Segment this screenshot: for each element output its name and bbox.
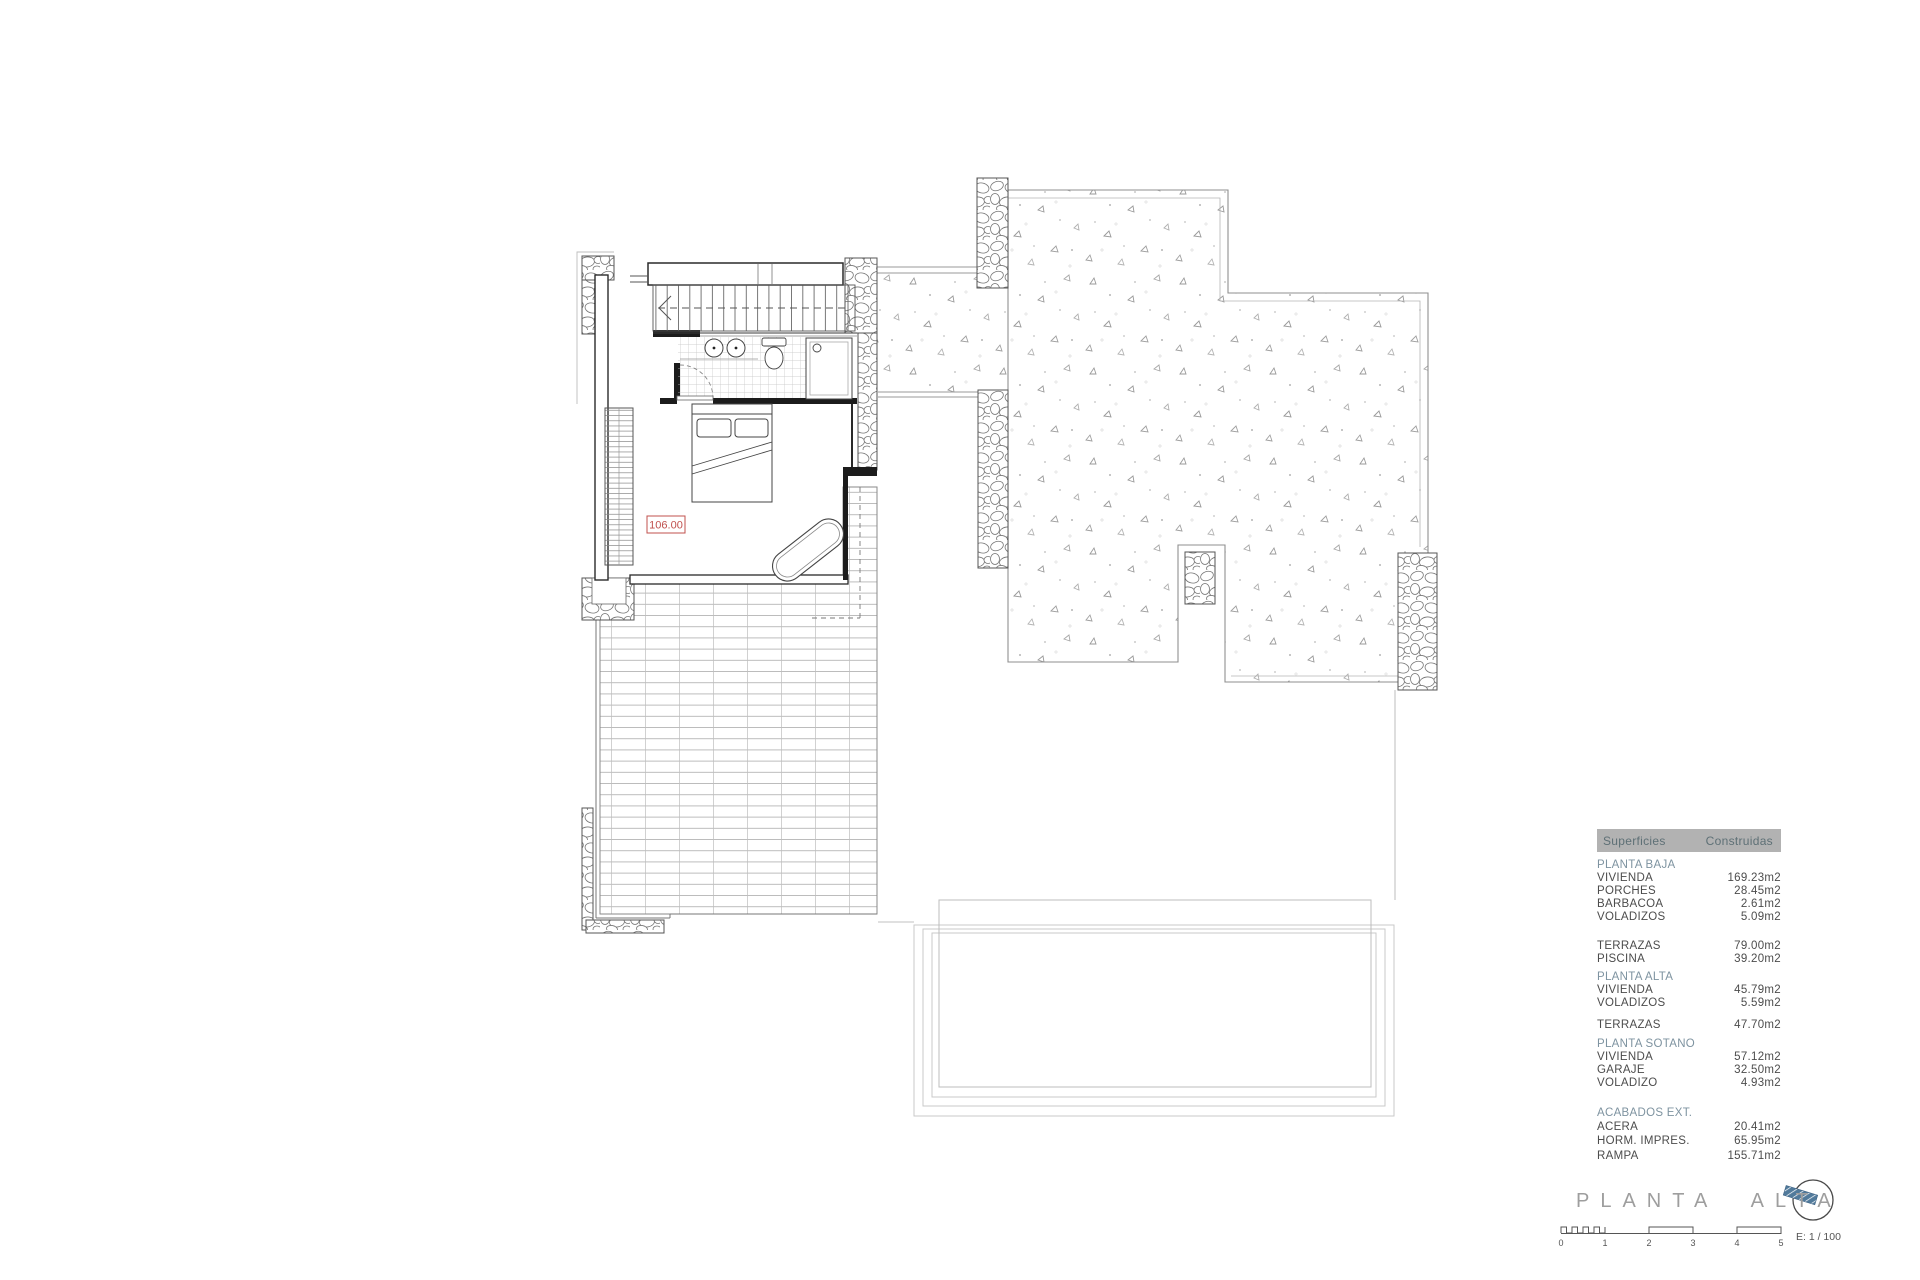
drawing-sheet: 106.00 0 1 2 3 4 5 E: 1 / 100 Superficie… — [0, 0, 1920, 1280]
stone-column — [977, 178, 1008, 288]
table-row: TERRAZAS47.70m2 — [1597, 1019, 1781, 1032]
scale-tick: 3 — [1690, 1238, 1695, 1248]
scale-bar: 0 1 2 3 4 5 E: 1 / 100 — [1558, 1227, 1841, 1248]
table-section-acabados: ACABADOS EXT. ACERA20.41m2 HORM. IMPRES.… — [1597, 1107, 1781, 1164]
scale-tick: 1 — [1602, 1238, 1607, 1248]
table-section-planta-baja: PLANTA BAJA VIVIENDA169.23m2 PORCHES28.4… — [1597, 859, 1781, 924]
window-lines — [630, 276, 648, 282]
bedroom: 106.00 — [605, 404, 850, 587]
stone-wall-strip — [858, 333, 877, 470]
area-label-text: 106.00 — [649, 520, 683, 532]
top-wall — [648, 263, 843, 285]
pillow — [697, 419, 731, 437]
bathroom — [677, 337, 852, 400]
scale-tick: 5 — [1778, 1238, 1783, 1248]
sheet-title: PLANTA ALTA — [1576, 1190, 1842, 1213]
table-section-terrazas-pa: TERRAZAS47.70m2 — [1597, 1019, 1781, 1032]
toilet-tank — [762, 338, 786, 346]
scale-ratio-label: E: 1 / 100 — [1796, 1231, 1841, 1243]
table-row: GARAJE32.50m2 — [1597, 1064, 1781, 1077]
header-col-superficies: Superficies — [1603, 834, 1666, 848]
stone-edge-strip — [586, 920, 664, 933]
table-row: HORM. IMPRES.65.95m2 — [1597, 1134, 1781, 1149]
section-title: PLANTA SOTANO — [1597, 1038, 1781, 1051]
table-row: BARBACOA2.61m2 — [1597, 898, 1781, 911]
table-row: VOLADIZOS5.09m2 — [1597, 911, 1781, 924]
scale-tick: 4 — [1734, 1238, 1739, 1248]
deck-terrace — [596, 487, 877, 918]
bed — [692, 404, 772, 502]
terrace-main — [1008, 190, 1428, 682]
section-title: PLANTA BAJA — [1597, 859, 1781, 872]
stone-corner — [582, 280, 596, 334]
staircase — [653, 285, 855, 331]
table-row: RAMPA155.71m2 — [1597, 1149, 1781, 1164]
door-leaf — [677, 396, 713, 400]
table-section-planta-sotano: PLANTA SOTANO VIVIENDA57.12m2 GARAJE32.5… — [1597, 1038, 1781, 1090]
scale-tick: 2 — [1646, 1238, 1651, 1248]
terrace-bridge — [858, 273, 1008, 394]
toilet-bowl — [765, 347, 783, 369]
table-row: VIVIENDA45.79m2 — [1597, 984, 1781, 997]
table-row: PORCHES28.45m2 — [1597, 885, 1781, 898]
pool-outline — [878, 690, 1395, 1116]
stone-corner-notch — [592, 578, 626, 604]
bottom-wall — [630, 575, 848, 584]
scale-tick: 0 — [1558, 1238, 1563, 1248]
pillow — [735, 419, 768, 437]
stone-column — [1398, 553, 1437, 690]
wall-stub — [843, 467, 877, 476]
table-row: VOLADIZO4.93m2 — [1597, 1077, 1781, 1090]
table-section-planta-alta: PLANTA ALTA VIVIENDA45.79m2 VOLADIZOS5.5… — [1597, 971, 1781, 1010]
table-row: VIVIENDA169.23m2 — [1597, 872, 1781, 885]
stippled-terrace — [855, 190, 1428, 682]
scale-bar-teeth — [1561, 1227, 1605, 1233]
table-row: VIVIENDA57.12m2 — [1597, 1051, 1781, 1064]
stone-column — [1185, 552, 1215, 604]
headboard — [692, 404, 772, 414]
stone-edge-strip — [582, 808, 593, 930]
table-row: PISCINA39.20m2 — [1597, 953, 1781, 966]
bedroom-right-wall — [843, 476, 848, 580]
areas-table: Superficies Construidas PLANTA BAJA VIVI… — [1597, 829, 1781, 1164]
section-title: ACABADOS EXT. — [1597, 1107, 1781, 1120]
header-col-construidas: Construidas — [1706, 834, 1773, 848]
section-title: PLANTA ALTA — [1597, 971, 1781, 984]
stone-column — [978, 390, 1008, 568]
table-row: ACERA20.41m2 — [1597, 1120, 1781, 1135]
areas-table-header: Superficies Construidas — [1597, 829, 1781, 852]
table-row: TERRAZAS79.00m2 — [1597, 940, 1781, 953]
area-label: 106.00 — [647, 516, 685, 533]
table-section-terrazas-pb: TERRAZAS79.00m2 PISCINA39.20m2 — [1597, 940, 1781, 966]
table-row: VOLADIZOS5.59m2 — [1597, 997, 1781, 1010]
